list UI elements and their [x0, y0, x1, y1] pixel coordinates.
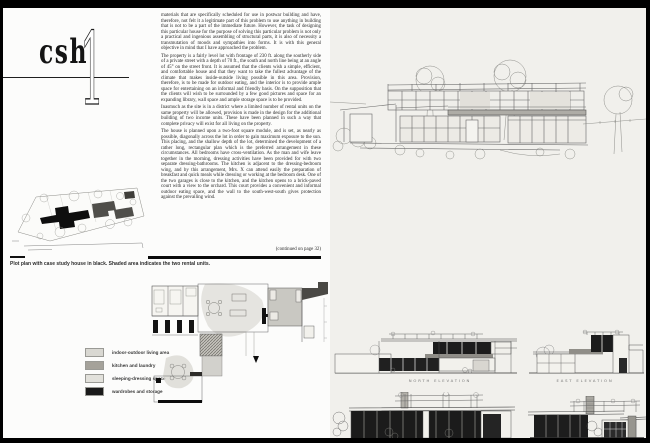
wardrobe-walls — [153, 320, 194, 333]
article-paragraph: materials that are specifically schedule… — [161, 13, 321, 52]
article-paragraph: Inasmuch as the site is in a district wh… — [161, 105, 321, 127]
article-paragraph: The property is a fairly level lot with … — [161, 54, 321, 104]
street-line — [12, 241, 143, 250]
issue-numeral: 1 — [80, 20, 95, 120]
house-sketch — [340, 83, 588, 150]
legend-swatch — [85, 387, 104, 396]
article-paragraph: The house is planned upon a two-foot squ… — [161, 129, 321, 201]
south-elevation-drawing — [331, 392, 515, 438]
west-elevation-drawing — [528, 396, 646, 438]
outbuilding — [124, 191, 135, 199]
floor-plan-drawing — [150, 282, 328, 412]
magazine-spread-scan: csh 1 materials that are specifically sc… — [0, 0, 650, 443]
east-elevation-drawing — [527, 328, 646, 376]
right-page: NORTH ELEVATION EAST ELEVATION — [330, 8, 646, 438]
east-elevation-label: EAST ELEVATION — [535, 378, 635, 383]
legend-label: kitchen and laundry — [112, 363, 155, 368]
north-elevation-drawing — [333, 328, 519, 376]
brick-court — [200, 334, 222, 356]
logo-rule-divider — [3, 77, 129, 78]
north-elevation-label: NORTH ELEVATION — [385, 378, 495, 383]
page-spread: csh 1 materials that are specifically sc… — [3, 8, 646, 438]
column-rule-divider — [148, 256, 321, 259]
article-text-column: materials that are specifically schedule… — [161, 13, 321, 259]
site-plan-drawing — [10, 184, 156, 254]
caption-dash — [10, 256, 25, 258]
legend-swatch — [85, 374, 104, 383]
perspective-sketch — [330, 58, 646, 173]
continuation-note: (continued on page 32) — [235, 247, 321, 253]
site-plan-caption: Plot plan with case study house in black… — [10, 261, 316, 267]
north-arrow — [253, 356, 259, 363]
court-wall — [158, 400, 202, 403]
garage-wing — [302, 282, 328, 300]
legend-swatch — [85, 348, 104, 357]
legend-swatch — [85, 361, 104, 370]
left-page: csh 1 materials that are specifically sc… — [3, 8, 330, 438]
